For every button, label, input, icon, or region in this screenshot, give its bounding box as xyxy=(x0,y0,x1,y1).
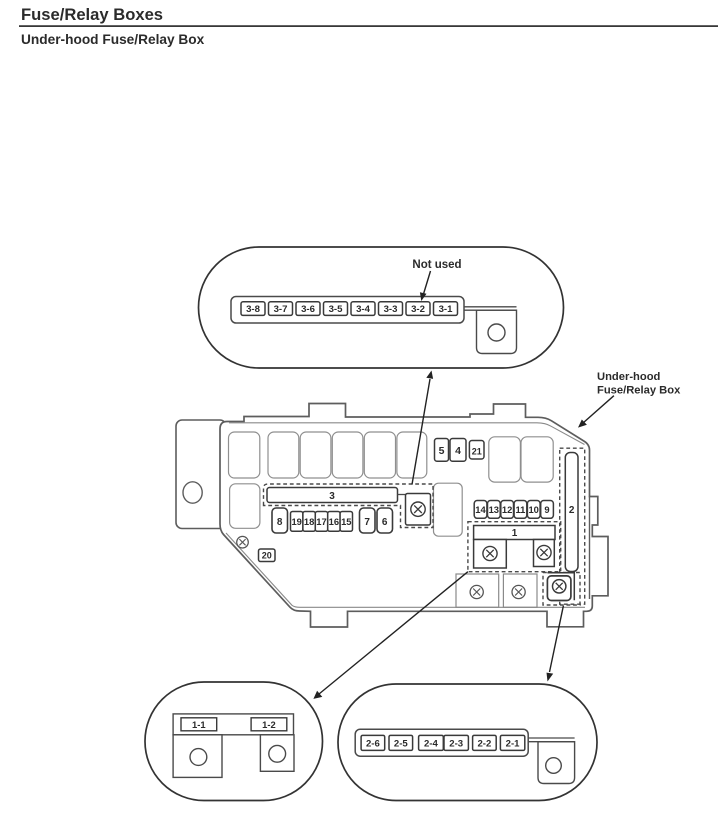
svg-text:3-2: 3-2 xyxy=(411,304,425,315)
svg-text:2-2: 2-2 xyxy=(477,738,491,749)
svg-text:18: 18 xyxy=(304,516,314,527)
svg-text:Under-hood Fuse/Relay Box: Under-hood Fuse/Relay Box xyxy=(21,32,205,47)
svg-text:3-8: 3-8 xyxy=(246,304,261,315)
svg-text:2-5: 2-5 xyxy=(394,738,409,749)
svg-text:14: 14 xyxy=(475,504,486,515)
svg-text:2-3: 2-3 xyxy=(449,738,463,749)
svg-text:17: 17 xyxy=(316,516,326,527)
svg-text:1: 1 xyxy=(512,528,518,539)
svg-text:2: 2 xyxy=(569,505,575,516)
svg-text:15: 15 xyxy=(341,516,351,527)
svg-text:7: 7 xyxy=(364,517,370,528)
svg-text:8: 8 xyxy=(277,517,283,528)
svg-text:2-6: 2-6 xyxy=(366,738,380,749)
svg-text:12: 12 xyxy=(502,504,512,515)
svg-text:21: 21 xyxy=(472,446,482,456)
svg-text:Under-hood: Under-hood xyxy=(597,371,661,383)
svg-text:11: 11 xyxy=(515,504,525,515)
svg-text:3-7: 3-7 xyxy=(274,304,288,315)
svg-text:3: 3 xyxy=(329,491,335,502)
svg-text:19: 19 xyxy=(291,516,301,527)
svg-text:3-1: 3-1 xyxy=(439,304,454,315)
svg-text:3-4: 3-4 xyxy=(356,304,371,315)
svg-text:Fuse/Relay Boxes: Fuse/Relay Boxes xyxy=(21,5,163,24)
svg-text:10: 10 xyxy=(528,504,538,515)
svg-text:13: 13 xyxy=(489,504,499,515)
svg-text:16: 16 xyxy=(329,516,339,527)
svg-text:2-4: 2-4 xyxy=(424,738,439,749)
svg-text:1-2: 1-2 xyxy=(262,719,276,730)
svg-text:3-6: 3-6 xyxy=(301,304,315,315)
svg-text:Fuse/Relay Box: Fuse/Relay Box xyxy=(597,385,681,397)
svg-text:6: 6 xyxy=(382,517,388,528)
svg-text:20: 20 xyxy=(262,551,272,561)
svg-text:2-1: 2-1 xyxy=(506,738,521,749)
svg-text:3-3: 3-3 xyxy=(384,304,398,315)
svg-text:1-1: 1-1 xyxy=(192,719,206,730)
svg-text:4: 4 xyxy=(455,445,461,457)
svg-text:Not used: Not used xyxy=(412,259,461,271)
svg-text:9: 9 xyxy=(544,504,549,515)
svg-text:5: 5 xyxy=(439,445,445,457)
svg-text:3-5: 3-5 xyxy=(329,304,344,315)
